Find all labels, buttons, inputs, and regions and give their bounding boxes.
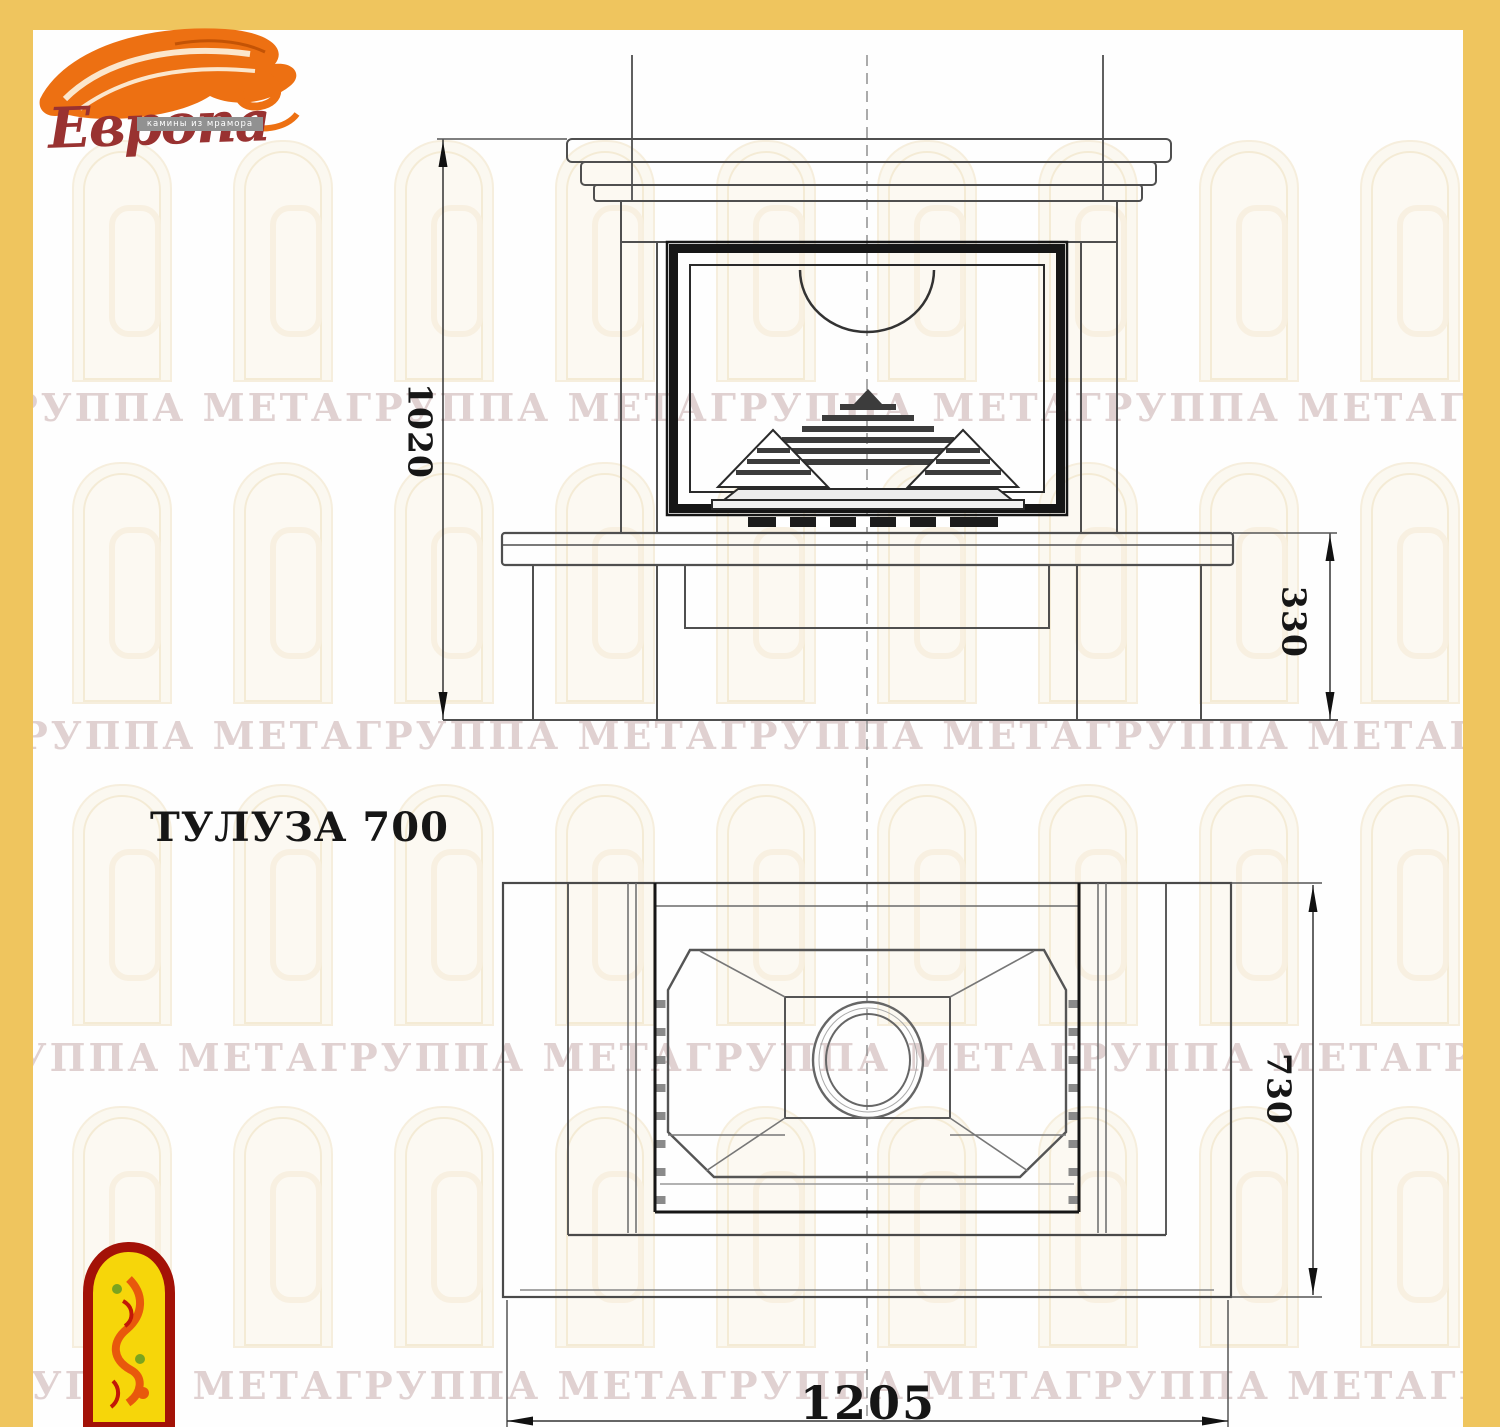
technical-drawing-svg: [0, 0, 1500, 1427]
europa-logo: Европа камины из мрамора: [25, 14, 325, 184]
top-plan-view: [503, 883, 1322, 1427]
sheet-frame-left: [0, 0, 33, 1427]
base-leg-right: [1077, 565, 1201, 720]
dim-line-height-1020: [437, 139, 567, 720]
base-leg-left: [533, 565, 657, 720]
model-title: ТУЛУЗА 700: [150, 804, 449, 851]
door-handle: [1057, 402, 1064, 450]
hearth-and-base: [443, 533, 1338, 720]
mantel-shelf: [567, 139, 1171, 242]
sheet-frame-right: [1463, 0, 1500, 1427]
log-platform: [712, 489, 1024, 509]
vent-strip: [748, 517, 998, 527]
front-elevation-view: [437, 55, 1338, 720]
flue-ellipse: [813, 1002, 923, 1118]
spec-sheet-page: ГРУППА МЕТАГРУППА МЕТАГРУППА МЕТАГРУППА …: [0, 0, 1500, 1427]
dim-label-width: 1205: [800, 1376, 936, 1427]
dim-label-depth: 730: [1260, 1053, 1299, 1125]
dim-label-height: 1020: [401, 383, 440, 479]
dim-label-base-height: 330: [1275, 586, 1314, 658]
brand-tagline: камины из мрамора: [137, 117, 263, 131]
fire-ornament-icon: [83, 1241, 175, 1427]
